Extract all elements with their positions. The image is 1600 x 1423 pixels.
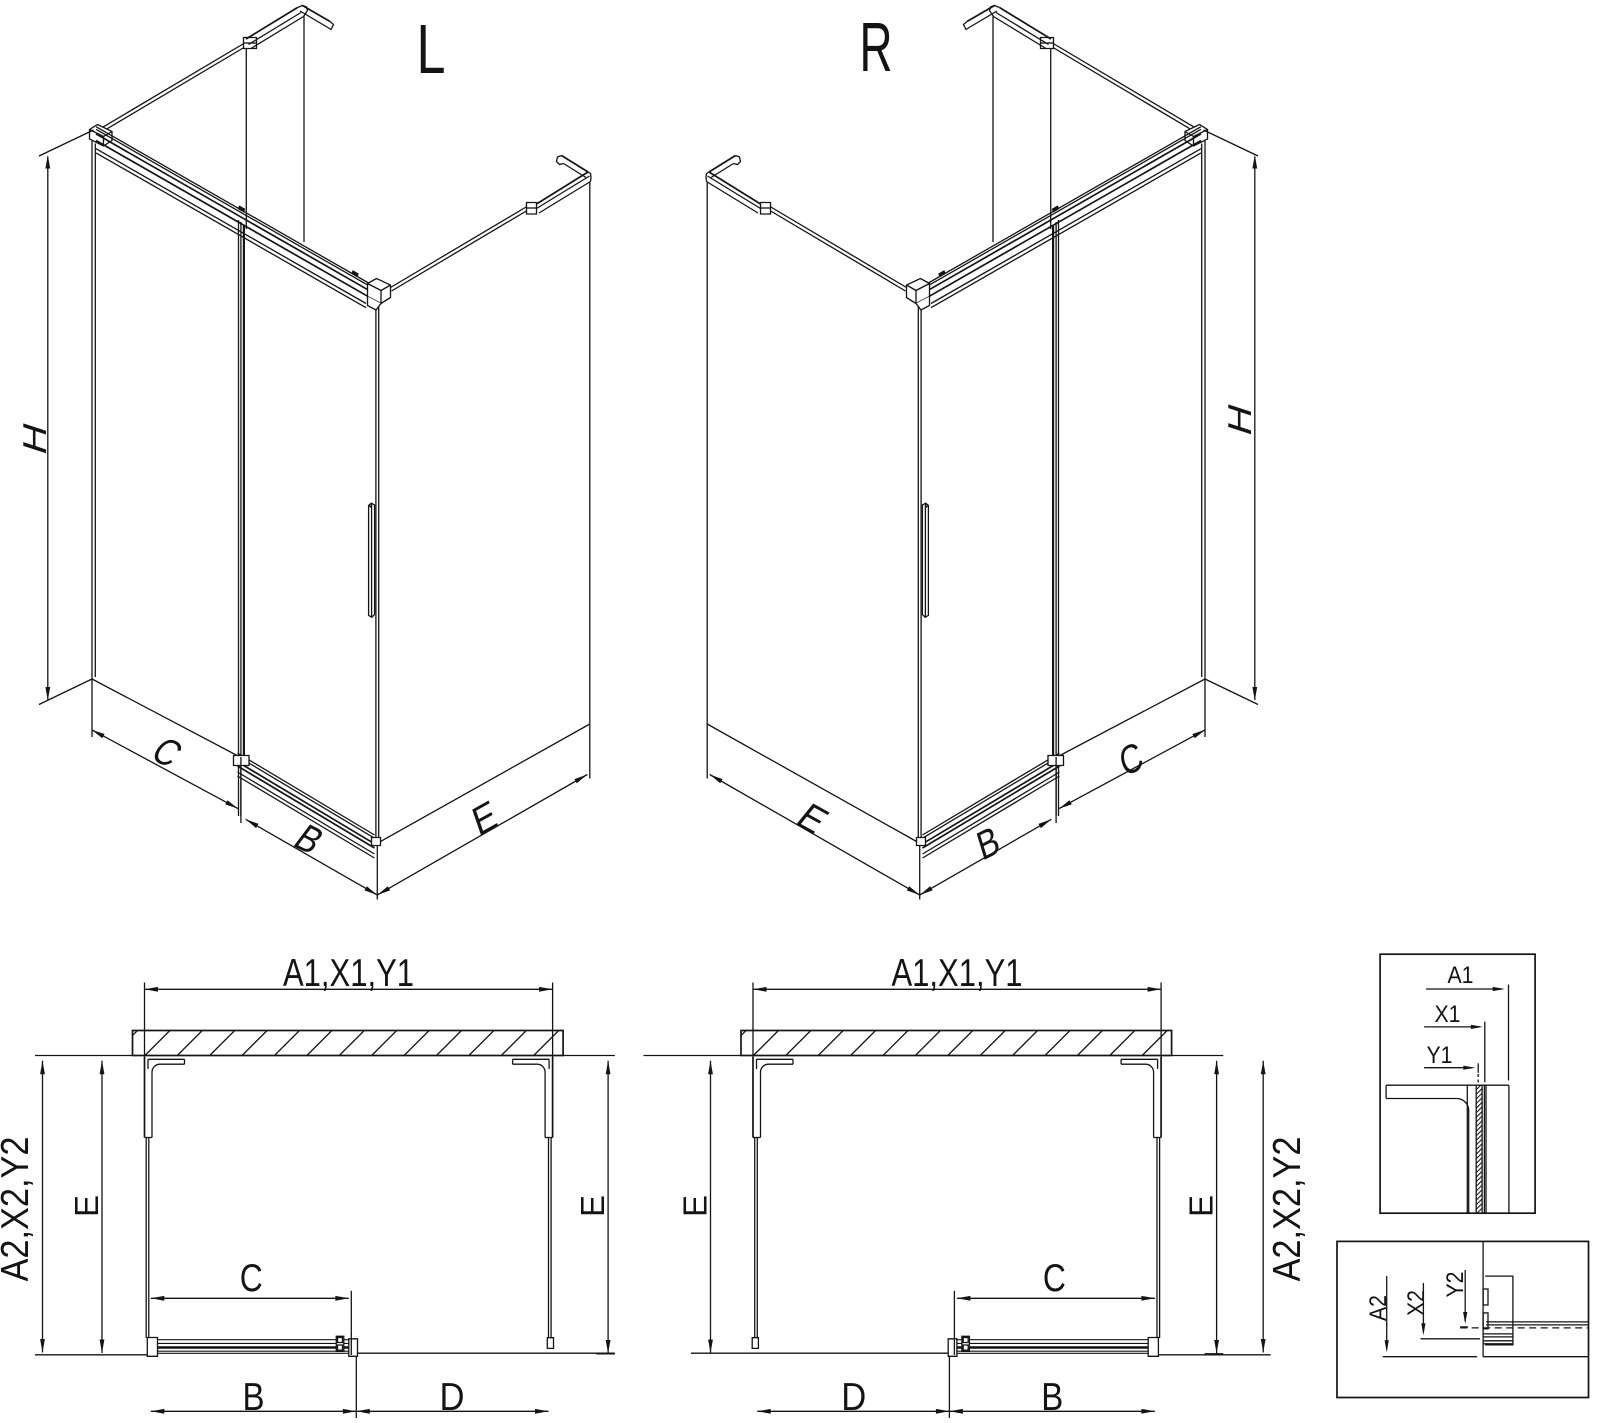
svg-text:X1: X1	[1435, 1001, 1461, 1028]
svg-text:B: B	[1041, 1376, 1063, 1419]
svg-text:C: C	[1043, 1257, 1066, 1300]
svg-text:E: E	[677, 1195, 714, 1217]
svg-text:A1: A1	[1448, 962, 1474, 989]
svg-text:D: D	[841, 1376, 866, 1419]
svg-text:L: L	[417, 10, 446, 88]
svg-text:A1,X1,Y1: A1,X1,Y1	[892, 952, 1023, 995]
svg-text:R: R	[860, 8, 893, 86]
svg-text:D: D	[440, 1376, 465, 1419]
svg-text:A2,X2,Y2: A2,X2,Y2	[1266, 1137, 1309, 1282]
svg-text:E: E	[574, 1195, 611, 1217]
svg-text:C: C	[240, 1257, 263, 1300]
svg-text:E: E	[1183, 1195, 1220, 1217]
svg-text:A1,X1,Y1: A1,X1,Y1	[283, 952, 414, 995]
svg-text:Y1: Y1	[1427, 1042, 1453, 1069]
svg-text:X2: X2	[1403, 1290, 1430, 1316]
svg-text:E: E	[68, 1195, 105, 1217]
svg-text:A2: A2	[1365, 1295, 1392, 1321]
svg-text:B: B	[243, 1376, 265, 1419]
svg-text:A2,X2,Y2: A2,X2,Y2	[0, 1137, 37, 1282]
